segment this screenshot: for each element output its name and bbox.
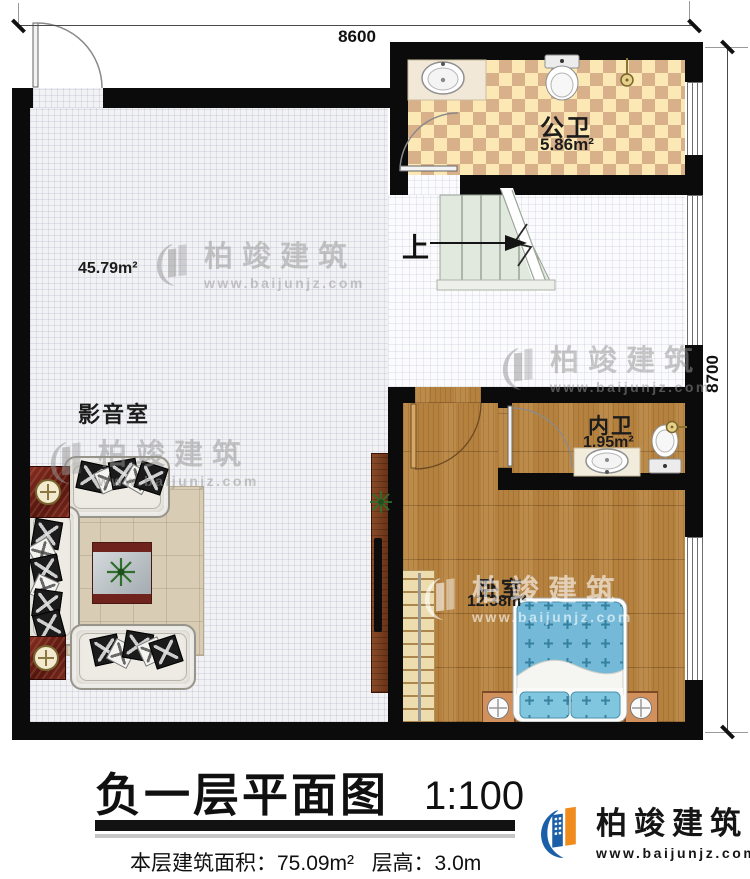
public-bath-area: 5.86m² — [540, 135, 594, 155]
wall-innerbath-left — [498, 387, 512, 408]
floor-area-text: 本层建筑面积：75.09m² 层高：3.0m — [130, 847, 481, 877]
media-room-label: 影音室 — [78, 397, 150, 429]
floorplan-canvas: 45.79m² 影音室 公卫 5.86m² 内卫 1.95m² 卧室 12.38… — [0, 0, 750, 879]
window-bedroom — [687, 537, 703, 682]
wall-left — [12, 88, 30, 740]
table-lamp — [33, 645, 59, 671]
coffee-table — [92, 542, 152, 604]
dimension-right-value: 8700 — [703, 348, 723, 400]
nightstand-left — [482, 692, 515, 724]
wall-right — [685, 42, 703, 82]
table-lamp — [35, 479, 61, 505]
wall-bedroom-top — [481, 387, 703, 403]
wall-right — [685, 345, 703, 537]
floor-innerbath-doorway — [498, 408, 512, 468]
inner-bath-area: 1.95m² — [583, 434, 634, 452]
brand-logo: 柏竣建筑 www.baijunjz.com — [536, 799, 750, 870]
dimension-line-top — [18, 25, 694, 26]
window-public-bath — [687, 82, 703, 157]
nightstand-right — [625, 692, 658, 724]
title-rule-thick — [95, 820, 515, 831]
wall-bath-bottom — [460, 175, 703, 195]
floor-bath-doorway — [400, 175, 460, 195]
stairs-up-label: 上 — [402, 226, 429, 265]
brand-url: www.baijunjz.com — [596, 845, 750, 861]
dimension-line-right — [727, 47, 728, 733]
brand-name: 柏竣建筑 — [596, 808, 750, 839]
wall-right — [685, 155, 703, 195]
window-hall — [687, 195, 703, 347]
floor-entry-doorway — [33, 88, 103, 108]
dimension-tick — [687, 19, 702, 34]
brand-logo-icon — [536, 799, 588, 870]
tv — [374, 538, 382, 632]
dimension-top-value: 8600 — [322, 27, 392, 47]
wall-top — [103, 88, 395, 108]
wall-bedroom-top — [388, 387, 415, 403]
wall-divider-media-bedroom — [388, 387, 403, 722]
wall-innerbath-bottom — [498, 473, 688, 490]
wall-top-corner — [12, 88, 33, 108]
plan-title: 负一层平面图 — [95, 772, 389, 818]
bedroom-area: 12.38m² — [467, 593, 527, 611]
ladder-rack — [402, 570, 435, 724]
title-rule-thin — [95, 834, 515, 838]
wall-bath-left — [390, 42, 408, 195]
floor-bedroom-doorway — [415, 387, 481, 403]
floor-hall — [388, 195, 685, 387]
side-table — [26, 636, 66, 680]
bed — [482, 596, 658, 724]
wall-bath-top — [390, 42, 703, 60]
side-table — [26, 466, 70, 518]
floor-area-value: 本层建筑面积：75.09m² — [130, 852, 354, 875]
wall-bottom — [12, 722, 703, 740]
plan-scale: 1:100 — [424, 776, 524, 816]
entry-door — [33, 23, 102, 88]
media-room-area: 45.79m² — [78, 260, 138, 278]
floor-height-value: 层高：3.0m — [372, 852, 482, 875]
wall-bath-bottom — [390, 175, 400, 195]
